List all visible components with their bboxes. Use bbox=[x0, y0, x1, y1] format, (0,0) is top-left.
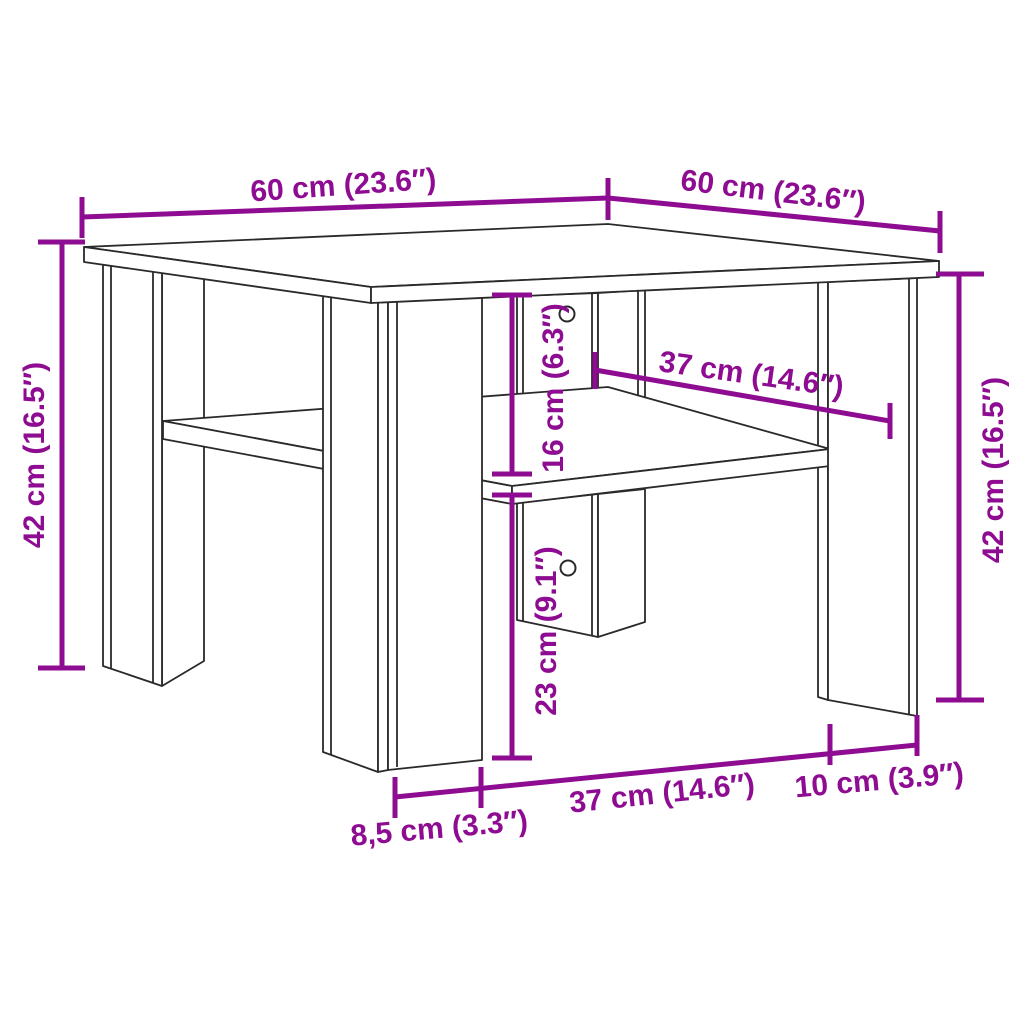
dim-label-height-left: 42 cm (16.5″) bbox=[18, 362, 51, 548]
right-leg-rear-panel bbox=[818, 282, 828, 700]
dim-label-leg-inset: 8,5 cm (3.3″) bbox=[349, 804, 529, 852]
dim-label-top-width-left: 60 cm (23.6″) bbox=[249, 163, 437, 209]
dim-label-top-depth-right: 60 cm (23.6″) bbox=[679, 164, 868, 219]
dimension-diagram: 60 cm (23.6″) 60 cm (23.6″) 42 cm (16.5″… bbox=[0, 0, 1024, 1024]
right-leg bbox=[828, 278, 917, 716]
left-leg-rear-panel bbox=[162, 264, 204, 686]
dim-label-shelf-clearance: 16 cm (6.3″) bbox=[537, 303, 570, 472]
dim-label-height-right: 42 cm (16.5″) bbox=[977, 377, 1010, 563]
front-leg bbox=[323, 296, 482, 772]
left-leg bbox=[103, 261, 162, 686]
tabletop bbox=[84, 224, 939, 303]
dim-label-leg-panel-width: 10 cm (3.9″) bbox=[793, 757, 965, 805]
lower-shelf bbox=[163, 387, 830, 504]
dim-height-left: 42 cm (16.5″) bbox=[18, 242, 85, 668]
dim-height-right: 42 cm (16.5″) bbox=[936, 274, 1010, 700]
coffee-table-diagram-canvas: 60 cm (23.6″) 60 cm (23.6″) 42 cm (16.5″… bbox=[0, 0, 1024, 1024]
dim-label-under-shelf-height: 23 cm (9.1″) bbox=[530, 546, 563, 715]
